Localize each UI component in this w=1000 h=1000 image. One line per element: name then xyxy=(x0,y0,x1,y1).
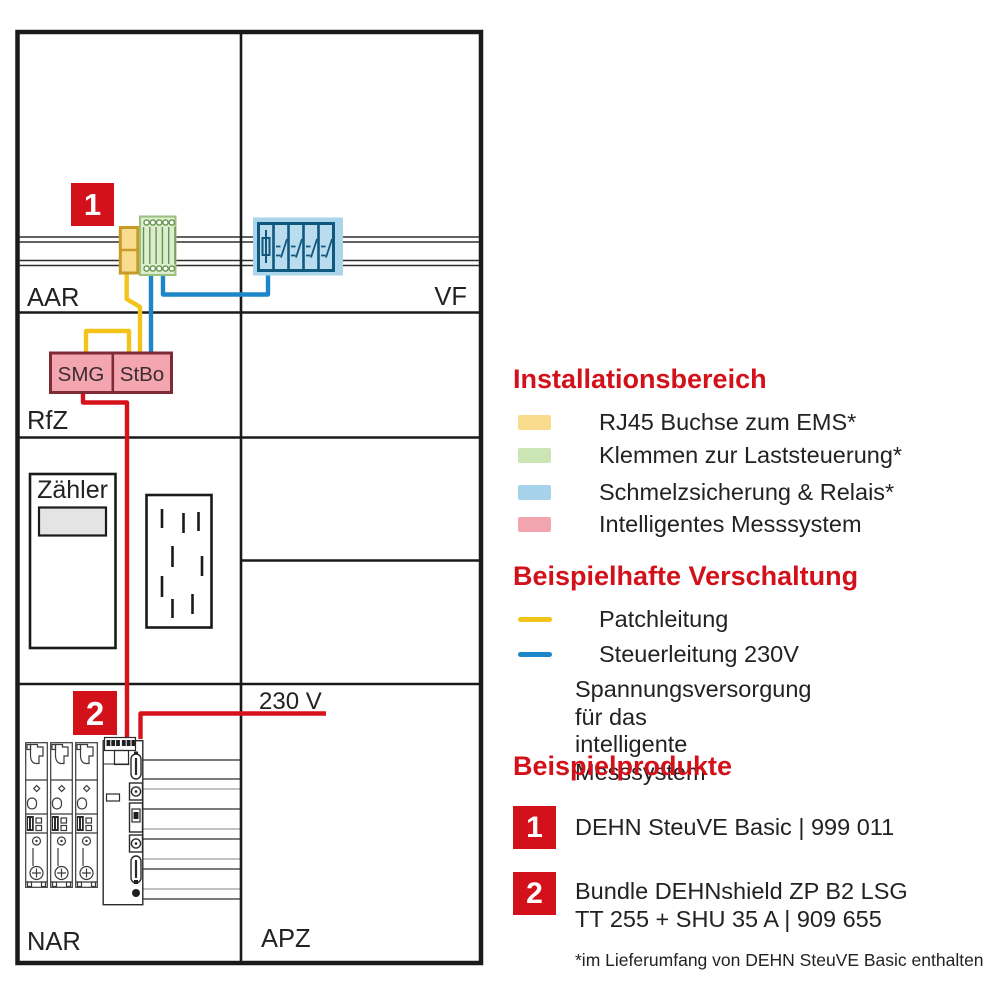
legend-area-row: Intelligentes Messsystem xyxy=(513,508,551,540)
marker-1-badge: 1 xyxy=(71,183,114,226)
legend-products-title: Beispielprodukte xyxy=(513,751,732,782)
label-aar: AAR xyxy=(27,284,79,312)
product-row: 1 DEHN SteuVE Basic | 999 011 xyxy=(513,806,556,849)
power-line-230v xyxy=(141,714,327,740)
meter-display xyxy=(39,508,106,536)
dehnshield-device xyxy=(103,738,143,905)
wire-swatch-control xyxy=(518,652,552,657)
marker-2-badge: 2 xyxy=(73,691,117,735)
legend-wire-row: Patchleitung xyxy=(513,603,552,635)
label-apz: APZ xyxy=(261,925,311,953)
legend-area-label: RJ45 Buchse zum EMS* xyxy=(599,409,856,436)
control-line-to-relay xyxy=(163,270,268,295)
breaker-unit xyxy=(51,743,73,888)
marker-2-number: 2 xyxy=(86,695,104,732)
legend-wiring-title: Beispielhafte Verschaltung xyxy=(513,561,858,592)
meter-label: Zähler xyxy=(37,476,108,504)
legend-area-row: RJ45 Buchse zum EMS* xyxy=(513,406,551,438)
swatch-rj45 xyxy=(518,415,551,430)
smg-label: SMG xyxy=(58,363,105,386)
legend-wire-label: Steuerleitung 230V xyxy=(599,641,799,668)
product-label-line: Bundle DEHNshield ZP B2 LSG xyxy=(575,877,908,905)
legend-area-row: Klemmen zur Laststeuerung* xyxy=(513,439,551,471)
legend-area-label: Klemmen zur Laststeuerung* xyxy=(599,442,902,469)
distribution-box xyxy=(147,495,212,628)
legend-area-label: Schmelzsicherung & Relais* xyxy=(599,479,894,506)
label-rfz: RfZ xyxy=(27,407,68,435)
wire-swatch-patch xyxy=(518,617,552,622)
breaker-unit xyxy=(26,743,48,888)
label-nar: NAR xyxy=(27,928,81,956)
product-label-line: TT 255 + SHU 35 A | 909 655 xyxy=(575,905,908,933)
din-rails-top xyxy=(18,237,480,266)
product-row: 2 Bundle DEHNshield ZP B2 LSG TT 255 + S… xyxy=(513,872,556,915)
label-230v: 230 V xyxy=(259,688,322,715)
rj45-socket-component xyxy=(120,228,138,274)
smart-meter-system-box: SMG StBo xyxy=(51,353,172,393)
fuse-relay-component xyxy=(253,218,343,276)
product-label: DEHN SteuVE Basic | 999 011 xyxy=(575,806,894,849)
legend-wire-label: Patchleitung xyxy=(599,606,728,633)
breaker-unit xyxy=(76,743,98,888)
meter-box: Zähler xyxy=(30,474,116,648)
legend-area-label: Intelligentes Messsystem xyxy=(599,511,862,538)
terminal-block-component xyxy=(140,217,176,276)
patch-cable-loop xyxy=(86,331,129,352)
swatch-fuse-relay xyxy=(518,485,551,500)
swatch-meter-system xyxy=(518,517,551,532)
legend-wire-row: Steuerleitung 230V xyxy=(513,638,552,670)
product-badge-1: 1 xyxy=(513,806,556,849)
legend: Installationsbereich RJ45 Buchse zum EMS… xyxy=(513,0,999,1000)
legend-wire-label-line: Spannungsversorgung für das xyxy=(575,676,811,731)
product-badge-2: 2 xyxy=(513,872,556,915)
distribution-board-diagram: SMG StBo Zähler xyxy=(0,0,500,1000)
legend-footnote: *im Lieferumfang von DEHN SteuVE Basic e… xyxy=(575,950,984,971)
label-vf: VF xyxy=(434,283,467,311)
main-fuse-breakers xyxy=(26,743,98,888)
marker-1-number: 1 xyxy=(84,187,101,222)
stbo-label: StBo xyxy=(120,363,164,386)
legend-areas-title: Installationsbereich xyxy=(513,364,767,395)
page: SMG StBo Zähler xyxy=(0,0,1000,1000)
legend-area-row: Schmelzsicherung & Relais* xyxy=(513,476,551,508)
product-label: Bundle DEHNshield ZP B2 LSG TT 255 + SHU… xyxy=(575,877,908,933)
swatch-terminals xyxy=(518,448,551,463)
din-rails-nar xyxy=(144,760,241,899)
